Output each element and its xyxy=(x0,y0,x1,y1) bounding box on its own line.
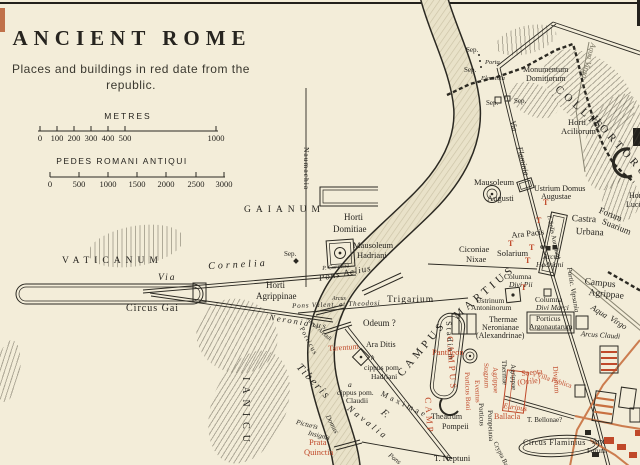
map-label-camp: CAMP xyxy=(423,397,435,435)
capitoline-corner-buildings xyxy=(575,385,640,458)
ara-ditis-dot xyxy=(360,356,363,359)
map-label-eventus: Eventus xyxy=(473,380,481,403)
map-label-pompeii: Pompeii xyxy=(442,423,469,431)
label-prata-quinctia: Prata xyxy=(309,438,326,447)
scale-bar-pedes xyxy=(50,172,225,177)
map-label-naumachia: Naumachia xyxy=(303,147,311,190)
label-via-cornelia: Via xyxy=(158,274,177,284)
temple-mark: T xyxy=(521,284,526,292)
map-label-porticus-boni: Porticus Boni xyxy=(463,372,471,411)
map-label--alexandrinae-: (Alexandrinae) xyxy=(476,332,524,340)
metres-tick-0: 0 xyxy=(38,134,42,143)
map-label-lucul-: Lucul. xyxy=(626,201,640,209)
map-label-ara-ditis: Ara Ditis xyxy=(366,341,396,349)
map-label-solarium: Solarium xyxy=(497,249,528,258)
label-ianiculum: IANICU xyxy=(240,377,250,448)
label-theatrum-pompeii: Theatrum xyxy=(431,413,462,421)
scale-metres-caption: METRES xyxy=(104,112,151,121)
temple-mark: T xyxy=(525,257,530,265)
label-vaticanum: VATICANUM xyxy=(62,257,163,267)
map-label-nixae: Nixae xyxy=(466,255,486,264)
pedes-tick-0: 0 xyxy=(48,180,52,189)
map-subtitle-line2: republic. xyxy=(106,79,156,91)
metres-tick-100: 100 xyxy=(51,134,64,143)
map-label-sep-: Sep. xyxy=(284,251,296,258)
map-label-aciliorum: Aciliorum xyxy=(561,127,596,136)
pedes-tick-1500: 1500 xyxy=(129,180,146,189)
map-label-thermae: Thermae xyxy=(500,360,508,385)
ancient-rome-map: ANCIENT ROME Places and buildings in red… xyxy=(0,0,640,465)
map-label-sep-: Sep. xyxy=(466,47,478,54)
map-label-domitiorum: Domitiorum xyxy=(526,75,566,83)
pedes-tick-1000: 1000 xyxy=(100,180,117,189)
temple-mark: T xyxy=(536,217,541,225)
map-label-argonautarum: Argonautarum xyxy=(529,323,573,331)
temple-mark: T xyxy=(529,244,534,252)
label-circus-flaminius: Circus Flaminius xyxy=(523,439,586,447)
map-label-ballacla: Ballacla xyxy=(494,413,520,421)
naumachia-basin xyxy=(320,187,378,206)
temple-mark: T xyxy=(543,199,548,207)
map-label-cippus-pom-: cippus pom. xyxy=(364,364,401,372)
map-label-arx: Arx xyxy=(592,438,604,446)
label-mausoleum-augusti: Mausoleum xyxy=(474,178,514,187)
map-label-t-bellonae-: T. Bellonae? xyxy=(527,417,562,424)
temple-mark: T xyxy=(508,240,513,248)
metres-tick-300: 300 xyxy=(85,134,98,143)
label-monumentum-domitiorum: Monumentum xyxy=(523,66,568,74)
map-label-pompeiana: Pompeiana xyxy=(486,410,494,441)
map-label-hadriani: Hadriani xyxy=(357,251,387,260)
pedes-tick-2500: 2500 xyxy=(188,180,205,189)
map-label-trigarium: Trigarium xyxy=(387,296,434,306)
map-label-domitiae: Domitiae xyxy=(333,225,367,234)
metres-tick-1000: 1000 xyxy=(208,134,225,143)
label-mausoleum-hadriani: Mausoleum xyxy=(353,241,393,250)
pons-aelius xyxy=(362,273,403,295)
pantheon-icon xyxy=(463,349,477,363)
label-horti-agrippinae: Horti xyxy=(266,281,285,290)
pedes-tick-3000: 3000 xyxy=(216,180,233,189)
label-via-flaminia: Via xyxy=(508,120,518,132)
map-label-augusti: Augusti xyxy=(487,194,514,203)
map-label-urbana: Urbana xyxy=(576,228,604,239)
map-label-agrippae: Agrippae xyxy=(491,367,499,393)
map-label-odeum-: Odeum ? xyxy=(363,319,396,328)
label-horti-luculliani: Horti xyxy=(629,192,640,200)
map-label-divi-marci: Divi Marci xyxy=(536,304,569,312)
map-label-gaianum: GAIANUM xyxy=(244,206,325,216)
map-title: ANCIENT ROME xyxy=(12,28,251,49)
map-label-claudii: Claudii xyxy=(346,397,368,405)
map-label-sep-: Sep. xyxy=(486,100,498,107)
metres-tick-500: 500 xyxy=(119,134,132,143)
pedes-tick-2000: 2000 xyxy=(158,180,175,189)
pedes-tick-500: 500 xyxy=(73,180,86,189)
label-circus-gai: Circus Gai xyxy=(126,304,179,314)
label-castra-urbana: Castra xyxy=(572,215,597,226)
map-label-hadriani: Hadriani xyxy=(536,261,564,269)
label-horti-domitiae: Horti xyxy=(344,213,363,222)
circus-gai xyxy=(16,283,206,304)
map-label-agrippae: Agrippae xyxy=(509,364,517,390)
metres-tick-400: 400 xyxy=(102,134,115,143)
columna-dot xyxy=(511,293,514,296)
map-label-stagnum: Stagnum xyxy=(482,363,490,388)
map-label-porticus: Porticus xyxy=(477,403,485,426)
map-subtitle-line1: Places and buildings in red date from th… xyxy=(12,63,250,75)
label-porta-flaminia: Porta xyxy=(485,60,500,67)
metres-tick-200: 200 xyxy=(68,134,81,143)
scale-pedes-caption: PEDES ROMANI ANTIQUI xyxy=(56,157,188,166)
map-label-sep-: Sep. xyxy=(464,67,476,74)
map-label-antoninorum: Antoninorum xyxy=(471,304,511,312)
map-label-sep-: Sep. xyxy=(514,98,526,105)
map-label-t-neptuni: T. Neptuni xyxy=(434,454,470,463)
scale-bar-metres xyxy=(38,126,218,131)
map-label-forum: Forum xyxy=(587,448,606,455)
map-label-hadriani: Hadriani xyxy=(371,373,397,381)
map-label-agrippinae: Agrippinae xyxy=(256,292,297,301)
map-label-ciconiae: Ciconiae xyxy=(459,245,489,254)
map-label-h: h xyxy=(371,355,375,362)
map-label-flaminia: Flaminia xyxy=(481,76,505,83)
ustrium-icon xyxy=(517,178,534,192)
map-label-quinctia: Quinctia xyxy=(304,448,333,457)
